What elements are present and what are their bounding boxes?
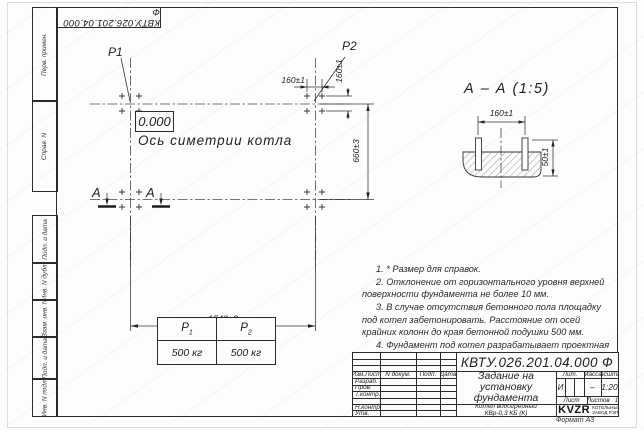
tb-scale-value: 1:20 — [601, 378, 618, 396]
margin-box-replaced-inventory: Взам. инв. N — [32, 299, 58, 338]
tb-header-doc-number: N докум. — [380, 371, 416, 378]
tb-sheets-label: Листов — [587, 397, 610, 404]
rotated-docnumber-text: КВТУ.026.201.04.000 Ф — [56, 6, 160, 28]
margin-box-inventory-duplicate: Инв. N дубл. — [32, 262, 58, 301]
load-table-value-row: 500 кг 500 кг — [158, 341, 276, 365]
note-3: 3. В случае отсутствия бетонного пола пл… — [362, 301, 616, 337]
section-dim-160: 160±1 — [478, 108, 525, 118]
level-mark: 0.000 — [135, 111, 174, 132]
load-table-header-p2: P2 — [217, 318, 276, 341]
tb-sheet-label: Лист — [556, 396, 587, 404]
load-value-p2: 500 кг — [217, 341, 276, 365]
tb-row-tcontrol: Т.контр. — [353, 391, 382, 398]
tb-header-signature: Подп. — [416, 371, 440, 378]
rotated-docnumber-stamp: КВТУ.026.201.04.000 Ф — [56, 7, 161, 28]
tb-lit-value: И — [556, 378, 565, 396]
tb-sheets-cell: Листов 1 — [587, 396, 618, 404]
format-label: Формат А3 — [530, 417, 620, 424]
kvzr-logo-text: KVZR — [558, 404, 590, 416]
section-view-title: А – А (1:5) — [464, 81, 550, 97]
dim-160-horizontal: 160±1 — [272, 75, 305, 85]
tb-lit-label: Лит. — [556, 371, 584, 378]
section-cut-letter-right: А — [146, 185, 155, 200]
boiler-symmetry-axis-label: Ось симетрии котла — [138, 133, 292, 148]
tb-row-approved: Утв. — [353, 410, 382, 416]
note-2: 2. Отклонение от горизонтального уровня … — [362, 276, 616, 300]
load-point-p2-label: P2 — [342, 39, 357, 53]
note-1: 1. * Размер для справок. — [362, 263, 616, 275]
title-block: Изм.Лист N докум. Подп. Дата Разраб. Про… — [352, 352, 619, 417]
technical-notes: 1. * Размер для справок. 2. Отклонение о… — [362, 263, 616, 364]
tb-header-date: Дата — [440, 371, 456, 378]
tb-sheets-value: 1 — [615, 397, 618, 404]
tb-mass-value: – — [584, 378, 601, 396]
section-cut-letter-left: А — [92, 185, 101, 200]
section-dim-50: 50±1 — [540, 137, 550, 177]
margin-label: Взам. инв. N — [42, 300, 49, 338]
load-table-header-row: P1 P2 — [158, 318, 276, 341]
kvzr-logo-caption: КОТЕЛЬНЫЙ ЗАВОД РЭП — [592, 405, 618, 416]
load-value-p1: 500 кг — [158, 341, 217, 365]
tb-document-number: КВТУ.026.201.04.000 Ф — [456, 353, 618, 371]
margin-label: Перв. примен. — [42, 33, 49, 76]
margin-box-signature-date-2: Подп. и дата — [32, 336, 58, 380]
margin-box-reference-number: Справ. N — [32, 100, 58, 192]
tb-product-name: Котел водогрейный КВр-0,3 КБ (К) — [456, 404, 556, 416]
tb-scale-label: Масштаб — [601, 371, 618, 378]
dim-660: 660±3 — [351, 131, 361, 171]
dim-160-vertical: 160±1 — [334, 54, 344, 88]
margin-box-signature-date-1: Подп. и дата — [32, 215, 58, 264]
margin-label: Справ. N — [42, 132, 49, 159]
margin-label: Подп. и дата — [42, 219, 49, 260]
tb-drawing-title: Задание на установку фундамента — [456, 371, 556, 404]
tb-mass-label: Масса — [584, 371, 601, 378]
margin-box-inventory-original: Инв. N подл. — [32, 378, 58, 417]
tb-header-izm-list: Изм.Лист — [353, 371, 380, 378]
load-table-header-p1: P1 — [158, 318, 217, 341]
margin-label: Инв. N дубл. — [42, 263, 49, 301]
margin-box-first-application: Перв. примен. — [32, 7, 58, 102]
margin-label: Инв. N подл. — [42, 379, 49, 417]
margin-label: Подп. и дата — [42, 338, 49, 379]
load-point-p1-label: P1 — [108, 45, 123, 59]
load-table: P1 P2 500 кг 500 кг — [157, 317, 276, 365]
tb-logo-cell: KVZR КОТЕЛЬНЫЙ ЗАВОД РЭП — [556, 404, 618, 416]
drawing-sheet: Перв. примен. Справ. N Подп. и дата Инв.… — [0, 0, 644, 430]
